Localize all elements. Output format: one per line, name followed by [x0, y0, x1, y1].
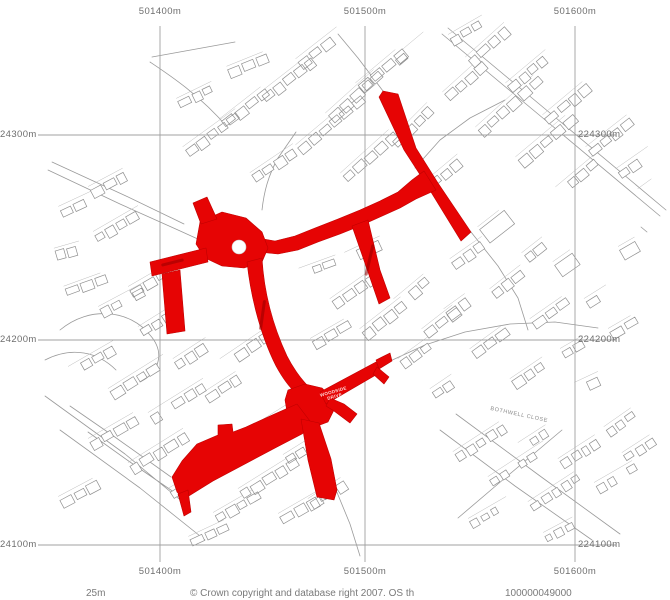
benchmark-tick: [152, 42, 235, 57]
highlighted-road-south-continuation: [301, 419, 337, 500]
highlighted-fork-prong-lower: [373, 367, 389, 384]
grid-label-left-224100: 24100m: [0, 539, 37, 550]
footer-copyright-text: © Crown copyright and database right 200…: [190, 588, 414, 599]
highlighted-road-southwest-stub: [162, 270, 185, 334]
grid-label-right-224100: 224100m: [578, 539, 620, 550]
grid-label-top-501500: 501500m: [344, 6, 386, 17]
footer-scale-text: 25m: [86, 588, 105, 599]
footer-licence-number: 100000049000: [505, 588, 572, 599]
grid-label-left-224300: 24300m: [0, 129, 37, 140]
footer-copyright-line: 25m © Crown copyright and database right…: [0, 588, 670, 600]
grid-label-bottom-501500: 501500m: [344, 566, 386, 577]
grid-label-left-224200: 24200m: [0, 334, 37, 345]
corner-tick: [641, 227, 647, 232]
crescent-roads: [45, 62, 296, 382]
grid-label-right-224300: 224300m: [578, 129, 620, 140]
map-drawing: [0, 0, 670, 595]
grid-label-right-224200: 224200m: [578, 334, 620, 345]
highlighted-road-south-branch: [247, 258, 308, 394]
grid-label-bottom-501400: 501400m: [139, 566, 181, 577]
grid-label-top-501400: 501400m: [139, 6, 181, 17]
roundabout-island: [232, 240, 246, 254]
grid-label-bottom-501600: 501600m: [554, 566, 596, 577]
building-linework: [55, 21, 657, 546]
highlighted-road-north-arm: [193, 197, 217, 224]
map-canvas: 501400m 501500m 501600m 501400m 501500m …: [0, 0, 670, 595]
highlighted-roads-overlay: [150, 91, 471, 516]
grid-label-top-501600: 501600m: [554, 6, 596, 17]
highlighted-road-southwest-band: [172, 404, 313, 499]
highlighted-fork-prong-upper: [376, 353, 392, 369]
